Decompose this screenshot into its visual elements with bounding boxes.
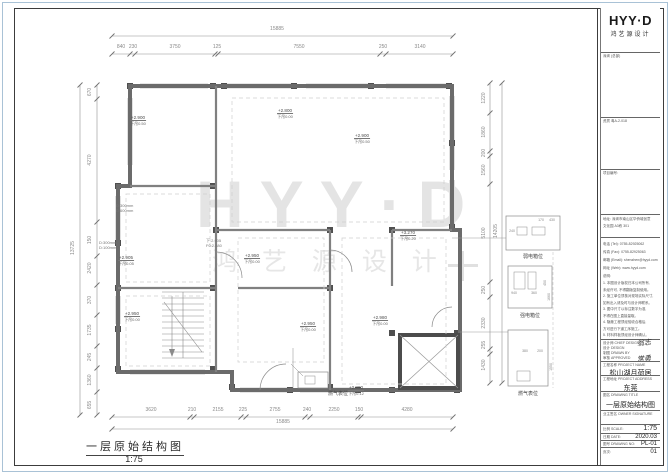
titleblock-border xyxy=(597,8,598,465)
page-label: 页次: xyxy=(603,450,611,455)
note-line: 未经许可, 不得翻版复制使用。 xyxy=(603,288,650,293)
company-address: 文化园 A3栋 301 xyxy=(603,224,629,229)
scale-label: 比例 SCALE: xyxy=(603,427,623,432)
project-name-label: 工程名称 PROJECT NAME xyxy=(603,363,645,368)
title-block: HYY·D 鸿艺源设计 深圳 (总部) 资质 粤A-2-018 项目编号: 地址… xyxy=(601,8,660,465)
owner-signature-label: 业主签名 OWNER SIGNATURE xyxy=(603,412,653,417)
company-address: 地址: 深圳市南山区华侨城创意 xyxy=(603,217,650,222)
titleblock-reg3: 项目编号: xyxy=(603,171,618,176)
note-line: 4. 隐蔽工程须经验收合格后, xyxy=(603,320,646,325)
company-fax: 传真 (Fax): 0755-82925063 xyxy=(603,250,646,255)
drawing-title-label: 图名 DRAWING TITLE xyxy=(603,393,638,398)
drawing-title: 一层原始结构图 xyxy=(601,400,660,410)
page-value: 01 xyxy=(650,449,657,455)
sheet-inner-frame xyxy=(14,8,664,466)
note-line: 2. 施工单位须核对现场实际尺寸, xyxy=(603,294,653,299)
company-email: 邮箱 (Email): shenzhen@hyyd.com xyxy=(603,258,658,263)
note-line: 如有出入请及时与设计师联系。 xyxy=(603,301,652,306)
titleblock-reg2: 资质 粤A-2-018 xyxy=(603,119,627,124)
note-line: 不得在图上直接量取。 xyxy=(603,314,638,319)
note-line: 1. 本图设计版权归本公司所有, xyxy=(603,281,650,286)
date-value: 2020.03 xyxy=(635,434,657,440)
note-line: 3. 图中尺寸以标注数字为准, xyxy=(603,307,646,312)
project-address-label: 工程地址 PROJECT ADDRESS xyxy=(603,377,652,382)
drawing-sheet: HYY·D 鸿 艺 源 设 计 xyxy=(0,0,670,474)
designer-signature: 翁志 xyxy=(637,337,652,348)
company-web: 网址 (Web): www.hyyd.com xyxy=(603,266,646,271)
notes-title: 说明: xyxy=(603,274,611,279)
company-tel: 电话 (Tel): 0755-82925062 xyxy=(603,242,644,247)
company-name: 鸿艺源设计 xyxy=(601,29,660,38)
titleblock-reg1: 深圳 (总部) xyxy=(603,54,620,59)
company-logo: HYY·D xyxy=(601,13,660,28)
scale-value: 1:75 xyxy=(643,425,657,432)
drawing-no-value: PL-01 xyxy=(641,441,657,447)
note-line: 方可进行下道工序施工。 xyxy=(603,327,642,332)
